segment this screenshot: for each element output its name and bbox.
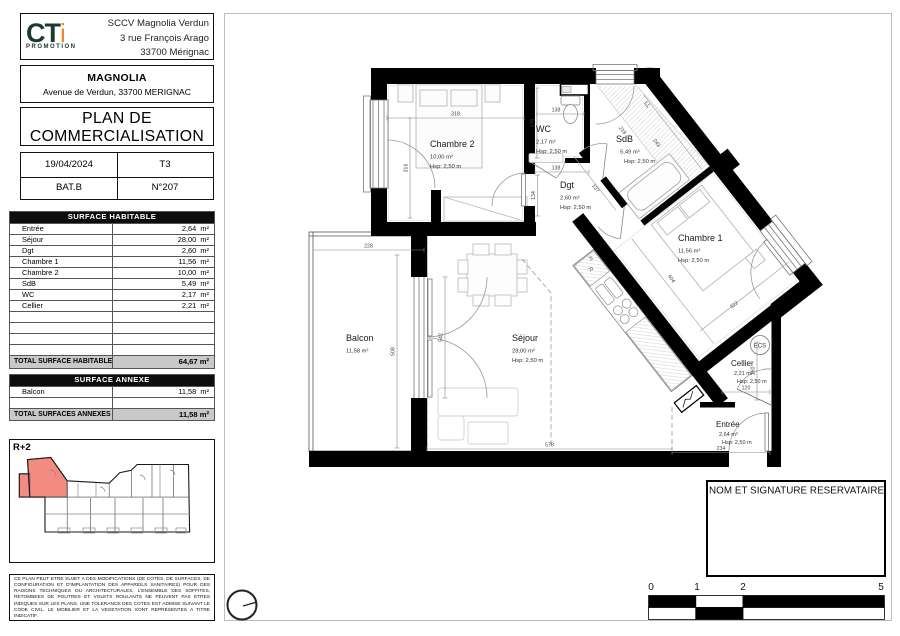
svg-text:LL: LL	[642, 101, 651, 110]
svg-text:175: 175	[531, 119, 537, 128]
svg-text:120: 120	[742, 386, 751, 392]
svg-text:234: 234	[717, 446, 726, 452]
svg-text:243: 243	[651, 138, 661, 149]
svg-text:R: R	[586, 266, 594, 274]
svg-text:2,64 m²: 2,64 m²	[719, 432, 738, 438]
svg-text:Hsp: 2,50 m: Hsp: 2,50 m	[512, 358, 543, 364]
svg-text:5,49 m²: 5,49 m²	[620, 150, 640, 156]
svg-text:228: 228	[364, 244, 373, 250]
svg-text:Dgt: Dgt	[560, 180, 575, 190]
svg-text:10,00 m²: 10,00 m²	[430, 155, 453, 161]
svg-text:Hsp: 2,50 m: Hsp: 2,50 m	[430, 164, 461, 170]
svg-text:138: 138	[552, 108, 561, 114]
svg-text:1: 1	[694, 582, 700, 593]
svg-text:316: 316	[404, 164, 410, 173]
svg-text:2,17 m²: 2,17 m²	[536, 140, 556, 146]
svg-text:ECS: ECS	[754, 344, 766, 350]
svg-text:Hsp: 2,50 m: Hsp: 2,50 m	[536, 149, 567, 155]
svg-text:Entrée: Entrée	[716, 420, 740, 429]
svg-text:Chambre 1: Chambre 1	[678, 233, 723, 243]
svg-text:70: 70	[587, 255, 594, 262]
svg-text:138: 138	[552, 166, 561, 172]
svg-text:Hsp: 2,50 m: Hsp: 2,50 m	[737, 379, 767, 385]
svg-text:Hsp: 2,50 m: Hsp: 2,50 m	[560, 205, 591, 211]
svg-text:SdB: SdB	[616, 134, 633, 144]
svg-text:Chambre 2: Chambre 2	[430, 139, 475, 149]
svg-text:137: 137	[590, 183, 600, 194]
svg-text:WC: WC	[536, 124, 551, 134]
svg-text:Hsp: 2,50 m: Hsp: 2,50 m	[678, 258, 709, 264]
svg-text:Balcon: Balcon	[346, 333, 374, 343]
svg-text:404: 404	[666, 274, 676, 285]
svg-text:Cellier: Cellier	[731, 359, 754, 368]
svg-text:134: 134	[531, 191, 537, 200]
svg-text:508: 508	[391, 347, 397, 356]
svg-text:Séjour: Séjour	[512, 333, 538, 343]
svg-text:578: 578	[545, 443, 554, 449]
svg-text:2,60 m²: 2,60 m²	[560, 196, 580, 202]
svg-text:0: 0	[648, 582, 654, 593]
svg-text:11,56 m²: 11,56 m²	[678, 249, 701, 255]
svg-text:160: 160	[751, 367, 757, 376]
svg-text:28,00 m²: 28,00 m²	[512, 349, 535, 355]
svg-text:322: 322	[729, 300, 740, 310]
svg-text:Hsp: 2,50 m: Hsp: 2,50 m	[624, 159, 655, 165]
svg-text:11,58 m²: 11,58 m²	[346, 349, 369, 355]
svg-text:2,21 m²: 2,21 m²	[734, 371, 753, 377]
svg-text:318: 318	[451, 112, 460, 118]
svg-text:542: 542	[439, 333, 445, 342]
svg-text:NOM ET SIGNATURE RESERVATAIRE: NOM ET SIGNATURE RESERVATAIRE	[709, 486, 884, 497]
svg-text:218: 218	[617, 125, 627, 136]
svg-text:5: 5	[878, 582, 884, 593]
svg-text:2: 2	[740, 582, 746, 593]
svg-text:Hsp: 2,50 m: Hsp: 2,50 m	[722, 440, 752, 446]
